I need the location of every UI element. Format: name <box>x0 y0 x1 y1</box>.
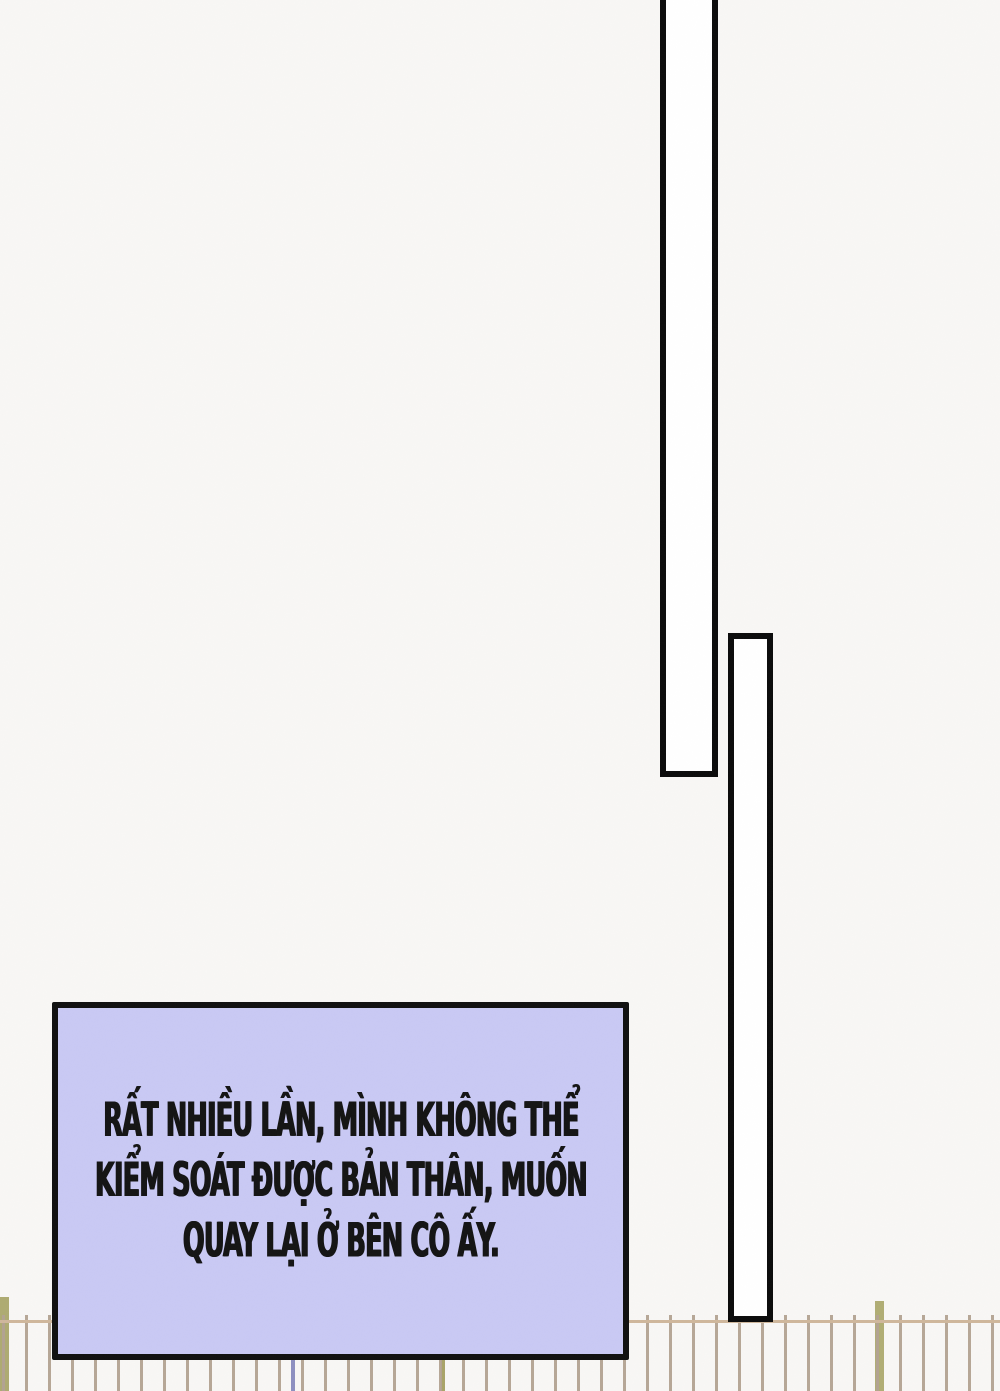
vertical-bar-short <box>728 633 773 1322</box>
narration-box: RẤT NHIỀU LẦN, MÌNH KHÔNG THỂ KIỂM SOÁT … <box>52 1002 629 1360</box>
narration-line-2: KIỂM SOÁT ĐƯỢC BẢN THÂN, MUỐN <box>95 1151 587 1211</box>
narration-text: RẤT NHIỀU LẦN, MÌNH KHÔNG THỂ KIỂM SOÁT … <box>95 1091 587 1272</box>
vertical-bar-tall <box>660 0 718 777</box>
narration-line-3: QUAY LẠI Ở BÊN CÔ ẤY. <box>182 1211 498 1271</box>
narration-line-1: RẤT NHIỀU LẦN, MÌNH KHÔNG THỂ <box>103 1091 578 1151</box>
comic-page: RẤT NHIỀU LẦN, MÌNH KHÔNG THỂ KIỂM SOÁT … <box>0 0 1000 1391</box>
